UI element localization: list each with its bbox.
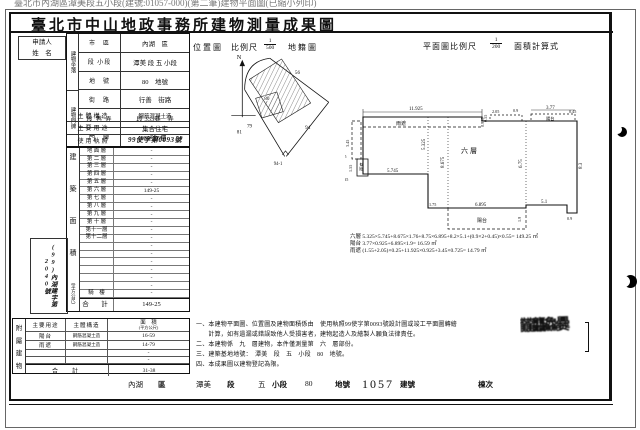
annex-row: 雨遮 鋼筋混凝土造 14-79 [26,341,189,350]
col-structure: 主體構造 [66,319,108,331]
floor-value: - [114,227,189,234]
row-value: 80 地號 [121,72,189,90]
floor-value-sixth: 149-25 [114,187,189,194]
floor-label [80,258,114,265]
table-row: 市 區 內湖 區 [79,34,189,53]
title-char: 建 [16,347,23,357]
attribute-table: 主體構造 鋼筋混凝土造 主要用途 集合住宅 使用執照 99使字第0093號 [66,110,190,147]
parcel-unit: 地號 [335,379,350,390]
area-calc-label: 面積計算式 [514,41,559,52]
floor-plan-drawing: 11.925 3.45 0.725 1.55 0.35 雨遮 雨遮 5.745 … [345,105,587,233]
floor-value: - [114,180,189,187]
floor-value: - [114,156,189,163]
bottom-location-strip: 內湖 區 潭美 段 五 小段 80 地號 1057 建號 棟次 [0,379,612,397]
annex-area: - [108,357,189,363]
row-value: 內湖 區 [121,34,189,52]
scale-fraction-200: 1 200 [490,37,502,50]
table-row: 主要用途 集合住宅 [67,122,189,134]
applicant-name-box: 申請人 姓 名 [18,36,66,60]
floor-label [80,266,114,273]
title-char: 附 [16,322,23,332]
title-char: 物 [16,360,23,370]
dim-canopy-d: 0.925 [480,118,485,127]
floor-label: 騎 樓 [80,290,114,297]
dim-bottom-mid: 6.895 [475,203,487,208]
area-total-row: 合 計149-25 [80,298,189,311]
floor-label: 第 八 層 [80,203,114,210]
floor-row: - [80,274,189,282]
floor-label: 第 六 層 [80,187,114,194]
row-value: 鋼筋混凝土造 [121,110,189,121]
annex-area: - [108,350,189,356]
annex-use [26,357,66,363]
scan-crescent-mark [624,275,637,288]
floor-row: 第 十 層- [80,219,189,227]
floor-row: - [80,282,189,290]
annex-structure [66,357,108,363]
dim-bottom-left: 5.745 [387,169,399,174]
floor-value: - [114,172,189,179]
section-value: 潭美 [196,379,211,390]
annex-total-label: 合 計 [26,365,109,376]
canopy-topright [490,115,522,121]
header-char: 面 [70,216,77,226]
dim-left-v: 3.45 [345,140,350,147]
building-number: 1057 [362,377,394,392]
subsection-value: 五 [258,379,266,390]
row-label: 地 號 [79,72,121,90]
parcel-56: 56 [295,70,301,76]
dim-balcony-end: 0.45 [569,109,576,114]
annex-total-value: 31-38 [109,365,189,376]
floor-row: 第 九 層- [80,211,189,219]
row-value: 潭美 段 五 小段 [121,53,189,71]
formula-canopy: 雨遮 (1.55+2.05)×0.25+11.925×0.925+3.45×0.… [350,248,605,255]
floor-row: - [80,266,189,274]
annex-area: 16-59 [108,332,189,340]
floor-label: 第十一層 [80,227,114,234]
room-label: 六層 [461,146,479,155]
section-unit: 段 [227,379,235,390]
dim-room-left-v: 5.325 [422,138,427,150]
floor-label: 第 四 層 [80,172,114,179]
col-area-unit: (平方公尺) [139,326,159,331]
district-unit: 區 [158,379,166,390]
dim-right-v: 8.3 [579,162,584,169]
dim-canopy-b: 0.9 [513,108,518,113]
area-table-header-vertical: 建 築 面 積 （平方公尺） [67,148,80,311]
note-line: 二、本建物係 九 層建物，本件僅測量第 六 層部份。 [196,340,588,350]
applicant-line1: 申請人 [19,37,65,48]
table-row: 主體構造 鋼筋混凝土造 [67,110,189,122]
subsection-unit: 小段 [272,379,287,390]
floor-plan-scale-label: 平面圖比例尺 [423,41,477,52]
dim-right-mid-v: 6.75 [519,159,524,168]
floor-value: - [114,266,189,273]
scan-crescent-mark [617,127,627,137]
floor-value: - [114,290,189,297]
row-value: 集合住宅 [121,122,189,133]
canopy-label-top: 雨遮 [396,120,406,127]
balcony-label-bottom: 陽台 [477,217,487,224]
floor-row: - [80,258,189,266]
parcel-79: 79 [247,123,253,129]
dim-top: 11.925 [409,107,423,112]
formula-floor: 六層 5.325×5.745+8.675×1.76+8.75×6.895+8.2… [350,234,605,241]
col-area: 面 積 (平方公尺) [108,319,189,331]
dim-bottom-right: 5.1 [541,200,548,205]
parcel-81: 81 [237,130,243,136]
floor-row: - [80,251,189,259]
dim-box-h: 1.55 [348,165,353,172]
site-map-drawing: N 79 56 80 81 94 94-1 [188,48,350,224]
floor-label: 第十二層 [80,235,114,242]
area-formulas: 六層 5.325×5.745+8.675×1.76+8.75×6.895+8.2… [350,234,605,255]
row-label: 主體構造 [67,110,121,121]
dim-corner: 0.9 [567,216,572,221]
floor-value: - [114,219,189,226]
row-label: 使用執照 [67,135,121,146]
annex-structure: 鋼筋混凝土造 [66,332,108,340]
col-use: 主要用途 [26,319,66,331]
canopy-left-strip [352,121,361,159]
north-label: N [237,54,242,61]
floor-value: - [114,235,189,242]
annex-row: - [26,350,189,357]
annex-use: 陽台 [26,332,66,340]
floor-value: - [114,251,189,258]
floor-value: - [114,148,189,155]
floor-value: - [114,282,189,289]
floor-row: 地 面 層- [80,148,189,156]
applicant-line2: 姓 名 [19,48,65,59]
floor-label: 第 十 層 [80,219,114,226]
floor-value: - [114,203,189,210]
row-value: 行善 街路 [121,90,189,108]
dim-left-w: 0.725 [345,154,346,159]
dim-box-w: 0.35 [345,177,348,182]
floor-label [80,243,114,250]
floor-label [80,251,114,258]
district-value: 內湖 [128,379,143,390]
annex-header-row: 主要用途 主體構造 面 積 (平方公尺) [26,319,189,332]
building-area-table: 建 築 面 積 （平方公尺） 地 面 層- 第 二 層- 第 三 層- 第 四 … [66,147,190,312]
header-char: 建 [70,152,77,162]
floor-value: - [114,243,189,250]
floor-value: - [114,258,189,265]
table-row: 街 路 行善 街路 [79,90,189,109]
floor-label: 第 五 層 [80,180,114,187]
floor-outline [363,117,577,213]
registry-number-box: (99)內湖建字第2040號 [30,238,68,314]
note-line: 三、建築基地地號： 潭美 段 五 小段 80 地號。 [196,350,588,360]
row-label: 市 區 [79,34,121,52]
print-header-text: 臺北市內湖區潭美段五小段(建號:01057-000)(第二筆)建物平面圖(已縮小… [14,0,316,8]
parcel-94-1: 94-1 [274,162,283,167]
floor-value: - [114,195,189,202]
header-char: 積 [70,248,77,258]
floor-value: - [114,211,189,218]
floor-label: 第 三 層 [80,164,114,171]
architect-stamp-text: 龖龘鱻爨 [520,314,606,336]
table-row: 使用執照 99使字第0093號 [67,135,189,146]
annex-building-table: 附 屬 建 物 主要用途 主體構造 面 積 (平方公尺) 陽台 鋼筋混凝土造 1… [12,318,190,374]
annex-structure: 鋼筋混凝土造 [66,341,108,349]
print-header-clipped: 臺北市內湖區潭美段五小段(建號:01057-000)(第二筆)建物平面圖(已縮小… [14,0,434,8]
note-line: 四、本成果圖以建物登記為限。 [196,360,588,370]
floor-row: - [80,243,189,251]
floor-label: 第 二 層 [80,156,114,163]
floor-row: 第 八 層- [80,203,189,211]
annex-use [26,350,66,356]
dim-mid-v: 8.675 [441,156,446,168]
registry-number-text: (99)內湖建字第2040號 [42,239,55,313]
total-value: 149-25 [114,299,189,311]
floor-label [80,274,114,281]
annex-total-row: 合 計 31-38 [26,364,189,376]
annex-row: - [26,357,189,364]
row-label: 段 小段 [79,53,121,71]
total-label: 合 計 [80,299,114,311]
annex-title-vertical: 附 屬 建 物 [13,319,26,373]
parcel-80: 80 [264,96,270,102]
formula-balcony: 陽台 3.77×0.925+6.895×1.9= 16.59 ㎡ [350,241,605,248]
floor-label: 第 七 層 [80,195,114,202]
scale-denominator: 200 [490,43,502,50]
parcel-value: 80 [305,379,313,388]
dim-canopy-a: 2.05 [492,109,499,114]
row-label: 街 路 [79,90,121,108]
floor-value: - [114,274,189,281]
group-building-site: 建物坐落 [67,34,78,91]
annex-structure [66,350,108,356]
block-unit: 棟次 [478,379,493,390]
floor-label: 第 九 層 [80,211,114,218]
floor-label [80,282,114,289]
crescent-bite [613,125,622,134]
dim-balcony-h: 1.9 [517,217,522,222]
scanned-survey-document: 臺北市內湖區潭美段五小段(建號:01057-000)(第二筆)建物平面圖(已縮小… [0,0,640,430]
document-bottom-second-line [9,404,613,405]
floor-value: - [114,164,189,171]
parcel-94: 94 [305,125,311,131]
table-row: 地 號 80 地號 [79,72,189,91]
row-label: 主要用途 [67,122,121,133]
dim-step: 1.75 [429,202,436,207]
area-unit-label: （平方公尺） [71,280,76,307]
title-char: 屬 [16,335,23,345]
building-number-unit: 建號 [400,379,415,390]
dim-balcony-top: 3.77 [546,106,555,111]
header-char: 築 [70,184,77,194]
floor-label: 地 面 層 [80,148,114,155]
canopy-label-left: 雨遮 [358,163,365,171]
annex-row: 陽台 鋼筋混凝土造 16-59 [26,332,189,341]
architect-stamp: 龖龘鱻爨 [520,314,606,338]
table-row: 段 小段 潭美 段 五 小段 [79,53,189,72]
floor-row: 第十二層- [80,235,189,243]
crescent-bite [619,276,630,287]
balcony-label-top: 陽台 [546,115,554,122]
annex-use: 雨遮 [26,341,66,349]
annex-area: 14-79 [108,341,189,349]
floor-row: 騎 樓- [80,290,189,298]
license-number-handwritten: 99使字第0093號 [121,135,189,146]
